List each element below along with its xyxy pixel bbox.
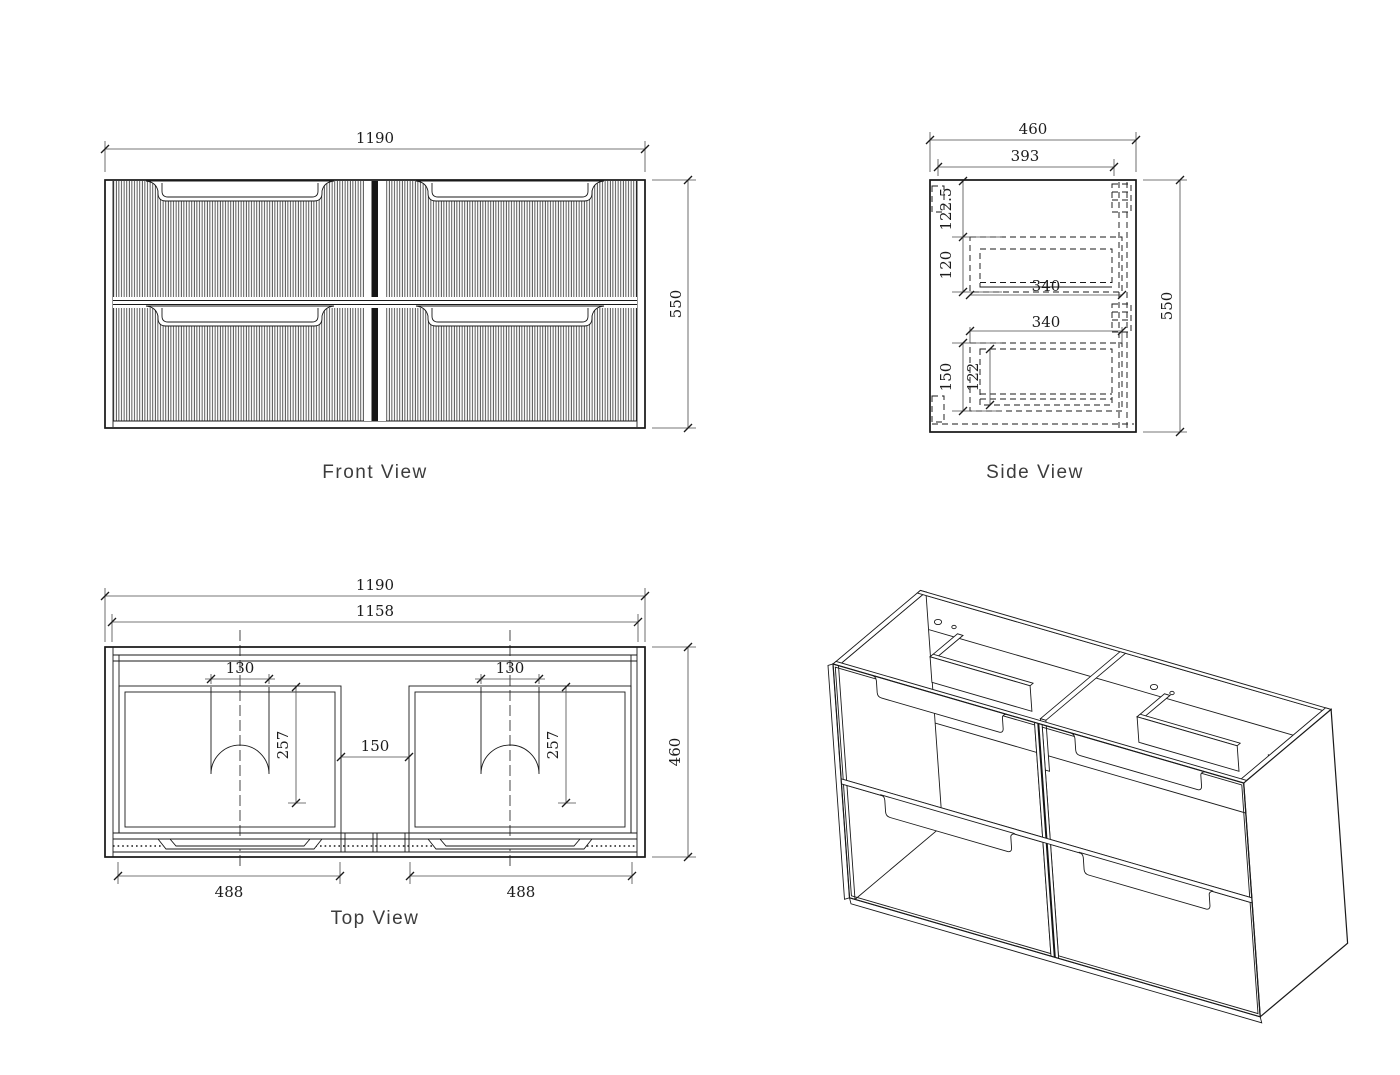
top-view: 1190 1158 130 130 xyxy=(101,576,696,929)
side-dim-lower-drawer-depth: 340 xyxy=(966,313,1126,343)
iso-screw-hole xyxy=(1150,684,1157,689)
svg-text:460: 460 xyxy=(666,738,684,767)
side-mount-bracket-mid-right xyxy=(1112,304,1131,332)
front-handle-recess-top-left xyxy=(146,181,334,201)
iso-screw-hole xyxy=(1170,691,1174,694)
side-view-label: Side View xyxy=(986,462,1084,483)
front-dim-width-text: 1190 xyxy=(356,129,394,147)
side-dim-inner-depth: 393 xyxy=(934,147,1118,176)
side-dim-overall-height: 550 xyxy=(1143,176,1187,436)
side-back-panel-hidden xyxy=(932,182,1134,430)
svg-text:150: 150 xyxy=(361,737,390,755)
svg-text:130: 130 xyxy=(226,659,255,677)
svg-text:488: 488 xyxy=(215,883,244,901)
top-view-label: Top View xyxy=(331,908,420,929)
side-dim-top-offset: 122.5 xyxy=(937,177,1002,241)
svg-text:1158: 1158 xyxy=(356,602,394,620)
svg-text:1190: 1190 xyxy=(356,576,394,594)
top-dim-right-drawer-width: 488 xyxy=(406,862,636,901)
iso-screw-hole xyxy=(952,625,956,628)
svg-text:257: 257 xyxy=(274,731,292,760)
svg-text:122: 122 xyxy=(964,363,982,392)
svg-text:130: 130 xyxy=(496,659,525,677)
top-dim-overall-depth: 460 xyxy=(652,643,696,861)
svg-text:150: 150 xyxy=(937,363,955,392)
top-left-drawer-box xyxy=(119,686,341,833)
svg-text:122.5: 122.5 xyxy=(937,188,955,231)
svg-text:393: 393 xyxy=(1011,147,1040,165)
front-dim-overall-height: 550 xyxy=(652,176,696,432)
svg-text:120: 120 xyxy=(937,251,955,280)
iso-screw-hole xyxy=(934,619,941,624)
drawing-canvas: 1190 550 Front View xyxy=(0,0,1400,1075)
top-dim-inner-width: 1158 xyxy=(108,602,642,642)
top-right-drawer-box xyxy=(409,686,631,833)
isometric-view xyxy=(828,590,1348,1022)
top-dim-center-gap: 150 xyxy=(337,737,413,761)
svg-text:340: 340 xyxy=(1032,313,1061,331)
top-left-handle-recess xyxy=(158,839,322,849)
front-handle-recess-top-right xyxy=(416,181,604,201)
top-dim-left-cutout-depth: 257 xyxy=(274,683,306,807)
technical-drawing-page: 1190 550 Front View xyxy=(0,0,1400,1075)
svg-text:460: 460 xyxy=(1019,120,1048,138)
side-view: 460 393 122.5 120 340 xyxy=(926,120,1187,483)
iso-left-side-inner xyxy=(839,592,943,899)
front-handle-recess-bottom-left xyxy=(146,306,334,326)
top-dim-left-drawer-width: 488 xyxy=(114,862,344,901)
front-view-label: Front View xyxy=(322,462,427,483)
side-lower-drawer-hidden xyxy=(970,343,1122,411)
side-dim-lower-drawer-inner-height: 122 xyxy=(964,345,994,409)
svg-text:257: 257 xyxy=(544,731,562,760)
top-front-strip xyxy=(113,833,637,852)
svg-text:488: 488 xyxy=(507,883,536,901)
top-right-handle-recess xyxy=(428,839,592,849)
front-dim-overall-width: 1190 xyxy=(101,129,649,172)
side-dim-upper-drawer-depth: 340 xyxy=(966,277,1126,299)
svg-text:550: 550 xyxy=(1158,292,1176,321)
front-view: 1190 550 Front View xyxy=(101,129,696,483)
side-bracket-bottom-left xyxy=(932,396,944,422)
svg-text:340: 340 xyxy=(1032,277,1061,295)
front-dim-height-text: 550 xyxy=(667,290,685,319)
top-dim-right-cutout-depth: 257 xyxy=(544,683,576,807)
front-handle-recess-bottom-right xyxy=(416,306,604,326)
side-mount-bracket-top-right xyxy=(1112,184,1131,212)
